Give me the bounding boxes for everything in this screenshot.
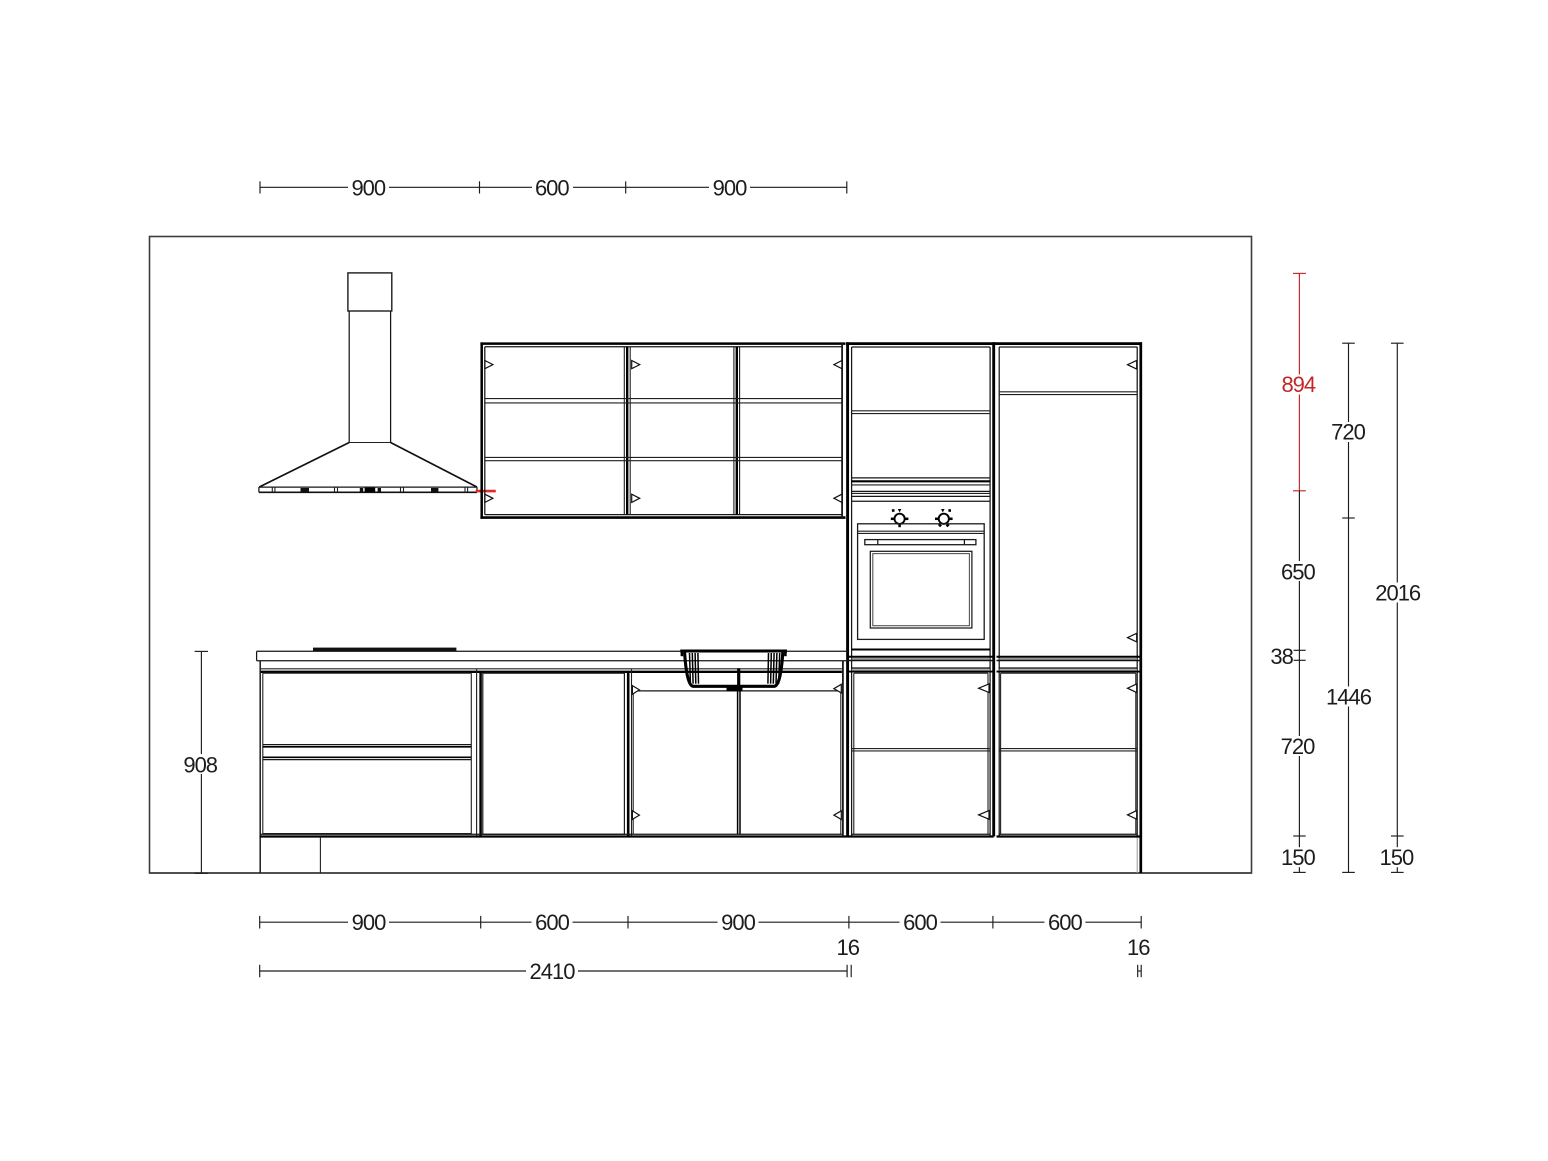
svg-text:150: 150 — [1281, 845, 1315, 870]
svg-text:2016: 2016 — [1375, 580, 1421, 605]
svg-text:2410: 2410 — [530, 959, 576, 984]
svg-text:600: 600 — [1048, 910, 1082, 935]
svg-text:900: 900 — [351, 175, 385, 200]
svg-text:720: 720 — [1331, 419, 1365, 444]
svg-text:900: 900 — [721, 910, 755, 935]
svg-text:908: 908 — [183, 752, 217, 777]
svg-text:150: 150 — [1380, 845, 1414, 870]
svg-text:600: 600 — [535, 175, 569, 200]
svg-text:16: 16 — [1127, 935, 1150, 960]
svg-text:650: 650 — [1281, 559, 1315, 584]
svg-text:16: 16 — [836, 935, 859, 960]
svg-text:900: 900 — [713, 175, 747, 200]
svg-text:600: 600 — [535, 910, 569, 935]
svg-text:720: 720 — [1281, 734, 1315, 759]
svg-text:1446: 1446 — [1326, 685, 1372, 710]
svg-text:894: 894 — [1281, 372, 1315, 397]
svg-text:900: 900 — [352, 910, 386, 935]
svg-text:600: 600 — [903, 910, 937, 935]
svg-text:38: 38 — [1270, 644, 1293, 669]
